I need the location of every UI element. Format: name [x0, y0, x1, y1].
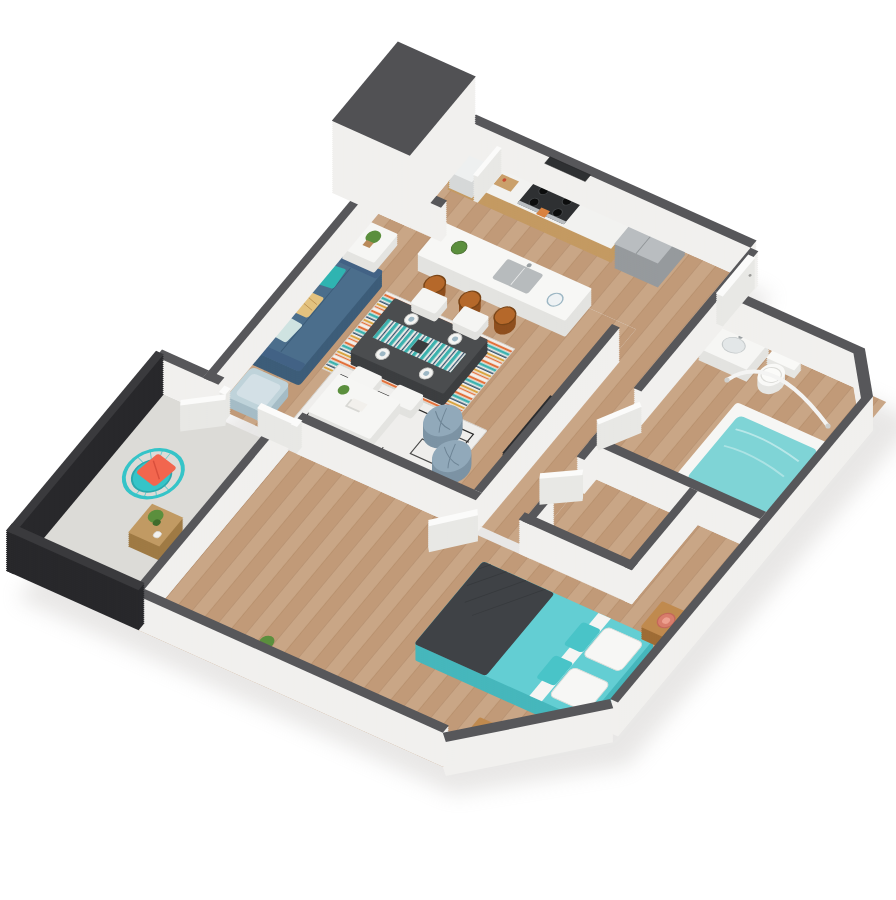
floor-plan-svg [0, 0, 896, 900]
floor-plan-render [0, 0, 896, 900]
rod-end [825, 423, 830, 428]
rod-end [724, 377, 729, 382]
